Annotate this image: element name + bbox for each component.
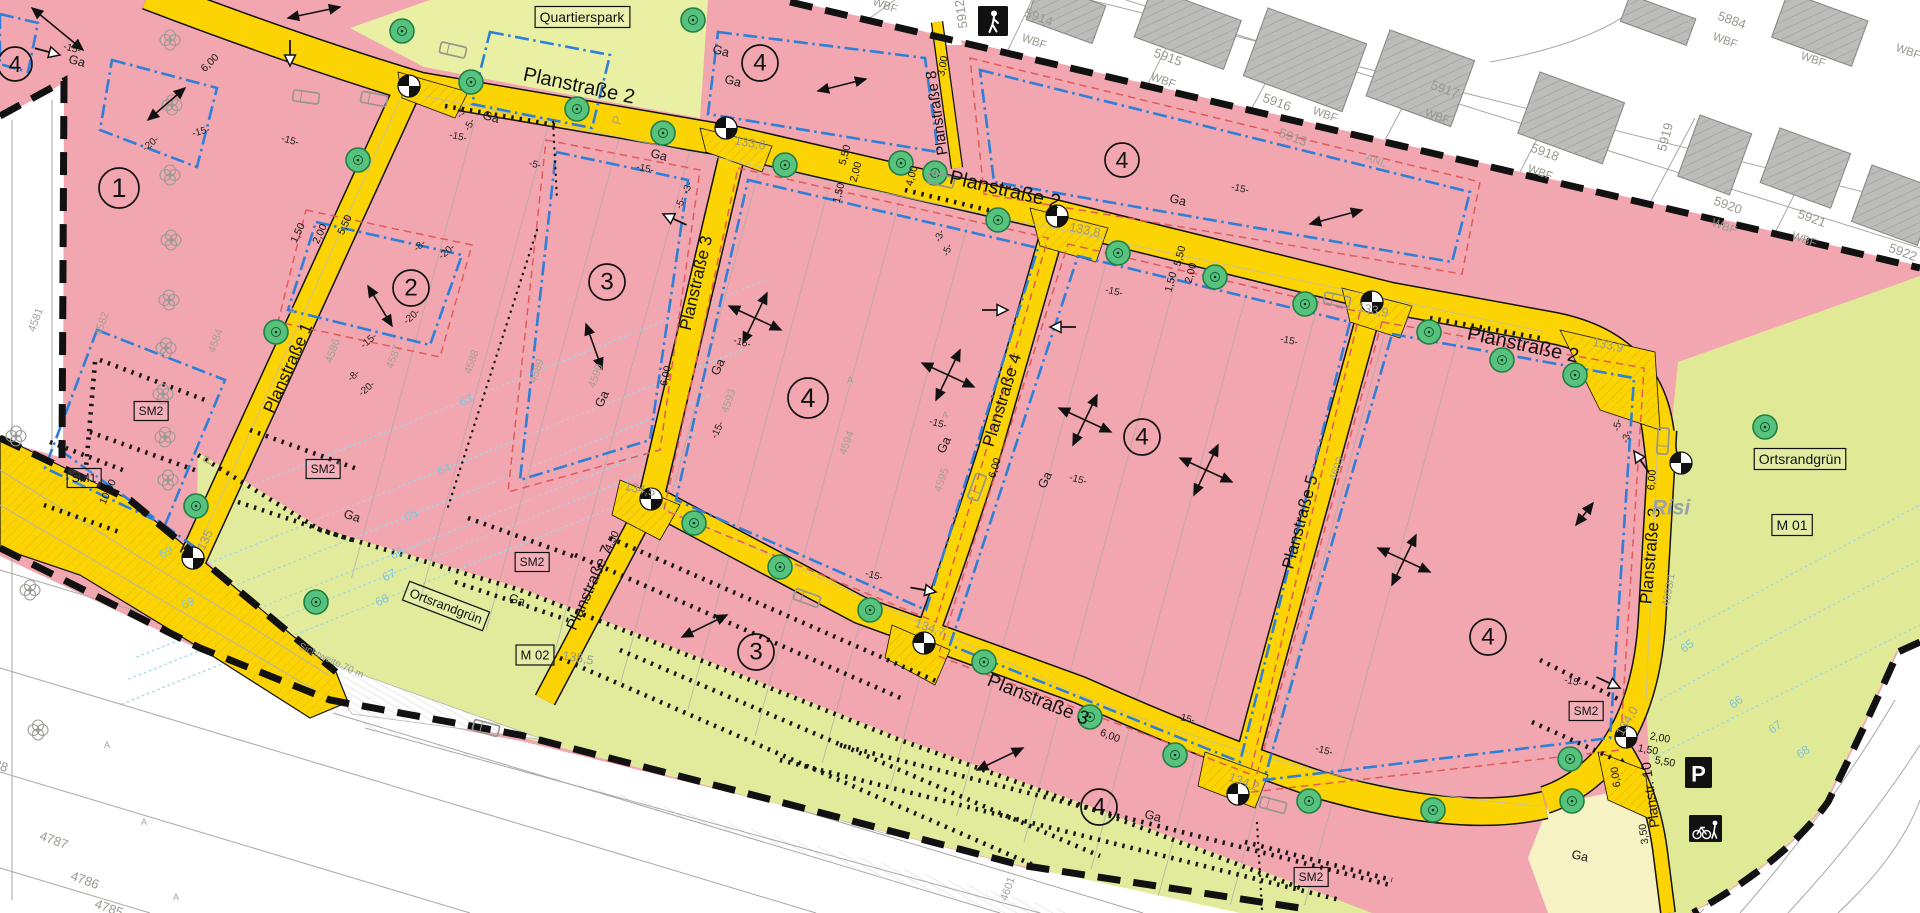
zone-number-label: 4	[1481, 624, 1495, 651]
tree-icon	[1106, 241, 1130, 265]
svg-text:SM2: SM2	[520, 555, 545, 569]
zone-number-label: 4	[753, 50, 767, 77]
map-annotation: A	[847, 375, 853, 385]
survey-marker-icon	[715, 117, 737, 139]
tree-icon	[565, 97, 589, 121]
pedestrian-icon	[978, 6, 1008, 36]
svg-text:SM2: SM2	[311, 462, 336, 476]
svg-text:M 01: M 01	[1776, 517, 1807, 533]
tree-icon	[459, 70, 483, 94]
tree-icon	[681, 8, 705, 32]
tree-icon	[1163, 743, 1187, 767]
tree-icon	[1203, 265, 1227, 289]
map-annotation: A	[173, 892, 179, 902]
zone-number-label: 1	[111, 173, 126, 203]
svg-text:SM2: SM2	[1574, 704, 1599, 718]
tree-icon	[1297, 789, 1321, 813]
boxed-label: Quartierspark	[535, 7, 630, 28]
tree-icon	[858, 598, 882, 622]
zone-number-label: 3	[600, 269, 614, 296]
boxed-label: Ortsrandgrün	[1754, 449, 1845, 470]
tree-icon	[682, 511, 706, 535]
svg-text:Ortsrandgrün: Ortsrandgrün	[1759, 451, 1841, 467]
survey-marker-icon	[398, 75, 420, 97]
map-annotation: 6,00	[1645, 469, 1659, 491]
tree-icon	[1753, 415, 1777, 439]
bike-pedestrian-icon	[1689, 815, 1722, 842]
map-annotation: Risi	[1652, 497, 1692, 520]
map-annotation: -5-	[1612, 418, 1625, 432]
boxed-label: SM2	[515, 553, 549, 572]
svg-text:Quartierspark: Quartierspark	[540, 9, 626, 25]
svg-text:SM2: SM2	[139, 404, 164, 418]
boxed-label: SM2	[1294, 868, 1328, 887]
tree-icon	[986, 208, 1010, 232]
tree-icon	[184, 494, 208, 518]
tree-icon	[1293, 292, 1317, 316]
zoning-plan-page: 41234444434 QuartiersparkOrtsrandgrünM 0…	[0, 0, 1920, 913]
tree-icon	[1558, 747, 1582, 771]
tree-icon	[768, 555, 792, 579]
boxed-label: M 02	[516, 645, 554, 665]
tree-icon	[773, 153, 797, 177]
map-annotation: -3-	[1621, 430, 1634, 444]
tree-icon	[346, 148, 370, 172]
tree-icon	[390, 19, 414, 43]
svg-text:M 02: M 02	[521, 648, 550, 663]
svg-text:P: P	[1691, 762, 1706, 787]
tree-icon	[304, 590, 328, 614]
map-annotation: A	[104, 740, 110, 750]
parking-icon: P	[1685, 757, 1712, 788]
boxed-label: SM2	[306, 460, 340, 479]
svg-text:SM1: SM1	[72, 471, 97, 485]
svg-text:SM2: SM2	[1299, 870, 1324, 884]
zoning-map-canvas: 41234444434 QuartiersparkOrtsrandgrünM 0…	[0, 0, 1920, 913]
tree-icon	[1421, 798, 1445, 822]
boxed-label: SM2	[1569, 702, 1603, 721]
tree-icon	[1417, 320, 1441, 344]
zone-number-label: 4	[1135, 424, 1149, 451]
map-annotation: A	[942, 410, 948, 420]
zone-number-label: 2	[404, 275, 418, 302]
tree-icon	[651, 121, 675, 145]
map-annotation: A	[141, 817, 147, 827]
zone-number-label: 3	[749, 639, 763, 666]
zone-number-label: 4	[800, 383, 815, 413]
zone-number-label: 4	[1116, 147, 1129, 173]
tree-icon	[1560, 789, 1584, 813]
zone-number-label: 4	[9, 51, 22, 77]
boxed-label: SM2	[134, 402, 168, 421]
boxed-label: SM1	[67, 469, 101, 488]
strip-west	[0, 83, 64, 458]
tree-icon	[264, 320, 288, 344]
zone-number-label: 4	[1092, 794, 1106, 821]
survey-marker-icon	[1670, 452, 1692, 474]
map-annotation: A	[289, 306, 295, 316]
boxed-label: M 01	[1772, 515, 1812, 536]
